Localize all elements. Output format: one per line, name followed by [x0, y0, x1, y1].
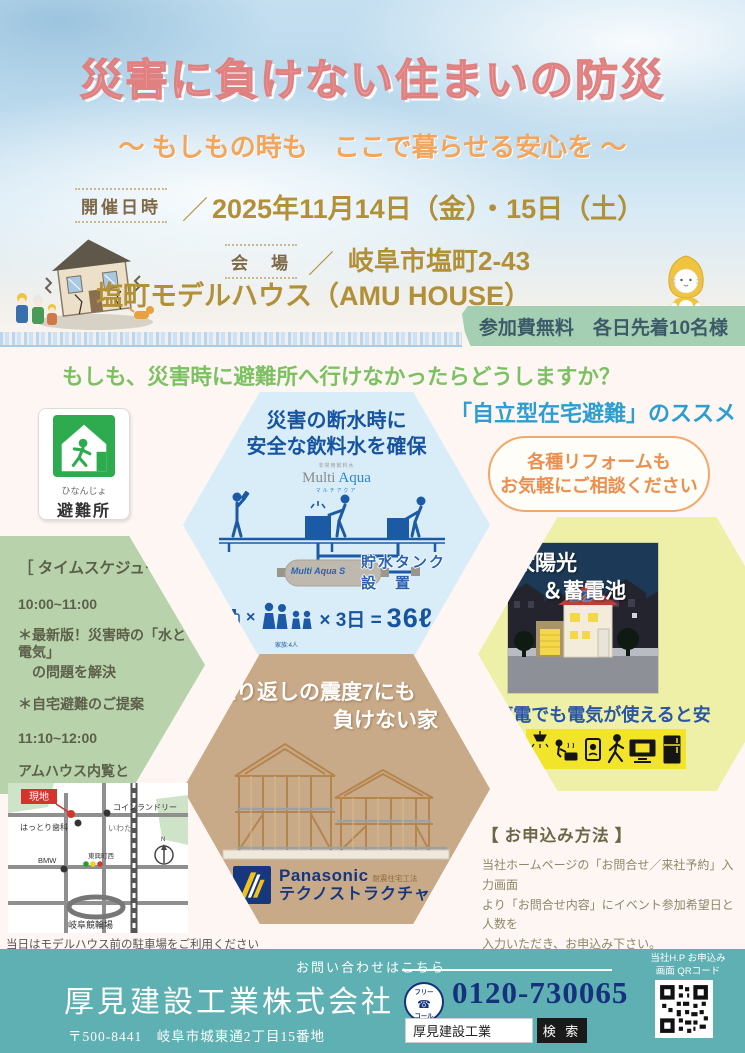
qr-code — [655, 980, 713, 1038]
product-name: テクノストラクチャー — [279, 886, 448, 904]
phone-number: 0120-730065 — [452, 975, 628, 1011]
search-button: 検 索 — [537, 1018, 587, 1043]
phone-glyph: ☎ — [417, 999, 431, 1011]
company-address: 〒500-8441 岐阜市城東通2丁目15番地 — [68, 1025, 325, 1045]
contact-divider — [402, 969, 612, 971]
search-box: 厚見建設工業 — [405, 1018, 533, 1043]
hex-solar-section: 太陽光 ＆蓄電池 停電でも電気が使えると安心！ — [478, 517, 745, 791]
reform-bubble: 各種リフォームも お気軽にご相談ください — [488, 436, 710, 512]
hex-schedule-section: ［ タイムスケジュール ］ 10:00~11:00 ＊最新版！災害時の「水と電気… — [0, 536, 205, 794]
schedule-title: ［ タイムスケジュール ］ — [18, 556, 196, 578]
company-name: 厚見建設工業株式会社 — [64, 977, 394, 1021]
shelter-furigana: ひなんじょ — [39, 484, 129, 497]
recommend-heading: 「自立型在宅避難」のススメ — [450, 396, 736, 428]
refrigerator-icon — [664, 736, 680, 763]
phone-icon — [586, 739, 600, 760]
date-label: 開催日時 — [75, 188, 167, 223]
venue-address: 岐阜市塩町2-43 — [348, 241, 530, 278]
application-heading: 【 お申込み方法 】 — [482, 822, 740, 846]
tv-icon — [630, 740, 655, 762]
event-date: 2025年11月14日（金）・15日（土） — [212, 187, 644, 226]
map-keirin: 岐阜競輪場 — [68, 919, 113, 930]
solar-image-title1: 太陽光 — [514, 547, 577, 577]
map-coin-laundry: コインランドリー — [113, 803, 177, 812]
evacuation-sign: ひなんじょ 避難所 — [38, 408, 130, 520]
water-heading: 災害の断水時に 安全な飲料水を確保 — [183, 408, 490, 460]
map-bmw: BMW — [38, 856, 57, 865]
tank-label: Multi Aqua S — [278, 566, 358, 576]
appliance-pictogram-strip — [526, 729, 686, 769]
fee-banner-text: 参加費無料 各日先着10名様 — [479, 313, 728, 340]
compass-n-label: N — [161, 837, 165, 843]
footer-band: お問い合わせはこちら 厚見建設工業株式会社 〒500-8441 岐阜市城東通2丁… — [0, 949, 745, 1053]
water-formula: × × 3日 = 36ℓ — [209, 598, 469, 638]
wood-frame-illustration — [211, 732, 461, 864]
flyer-page: 災害に負けない住まいの防災 ～ もしもの時も ここで暮らせる安心を ～ 開催日時… — [0, 0, 745, 1053]
brand-note: 耐震住宅工法 — [373, 875, 418, 883]
map-dental: はっとり歯科 — [20, 822, 68, 832]
page-title: 災害に負けない住まいの防災 — [0, 46, 745, 108]
hex-water-section: 災害の断水時に 安全な飲料水を確保 非常用飲料水 Multi Aqua マルチア… — [183, 392, 490, 658]
time-schedule: ［ タイムスケジュール ］ 10:00~11:00 ＊最新版！災害時の「水と電気… — [18, 556, 196, 800]
ceiling-light-icon — [532, 731, 548, 748]
tank-caption: 貯水タンク 設 置 — [361, 552, 481, 594]
qr-caption: 当社H.P お申込み 画面 QRコード — [638, 953, 738, 979]
free-call-icon: フリー ☎ コール — [404, 982, 444, 1022]
date-slash: ／ — [182, 190, 208, 227]
evacuation-pictogram-icon — [53, 415, 115, 477]
page-subtitle: ～ もしもの時も ここで暮らせる安心を ～ — [0, 127, 745, 164]
question-line: もしも、災害時に避難所へ行けなかったらどうしますか？ — [62, 360, 620, 391]
fee-banner: 参加費無料 各日先着10名様 — [462, 306, 745, 346]
shelter-label: 避難所 — [39, 497, 129, 521]
map-iwata: いわた — [108, 824, 132, 833]
house-heading1: 繰り返しの震度7にも — [215, 676, 416, 706]
panasonic-wordmark: Panasonic — [279, 867, 369, 886]
family-illustration — [16, 293, 57, 325]
hex-house-section: 繰り返しの震度7にも 負けない家 — [183, 654, 490, 924]
panasonic-logo-block: Panasonic 耐震住宅工法 テクノストラクチャー — [233, 866, 453, 904]
map-site-label: 現地 — [29, 790, 49, 803]
venue-name: 塩町モデルハウス（AMU HOUSE） — [96, 274, 531, 313]
access-map: 現地 コインランドリー はっとり歯科 いわた BMW 東興町西 岐阜競輪場 N — [8, 783, 188, 933]
family-icon — [260, 601, 314, 635]
cooking-person-icon — [556, 740, 577, 760]
technostructure-logo-icon — [233, 866, 271, 904]
solar-image-title2: ＆蓄電池 — [542, 575, 626, 605]
map-intersection: 東興町西 — [88, 851, 115, 860]
bottle-icon — [209, 598, 241, 638]
bottle-note: 飲料水:1日に3ℓ — [209, 640, 249, 649]
search-keyword: 厚見建設工業 — [413, 1021, 491, 1040]
contact-label: お問い合わせはこちら — [296, 957, 446, 976]
skyline-border — [0, 332, 462, 347]
house-heading2: 負けない家 — [333, 704, 438, 734]
family-note: 家族:4人 — [275, 640, 298, 649]
walking-person-icon — [609, 735, 623, 762]
